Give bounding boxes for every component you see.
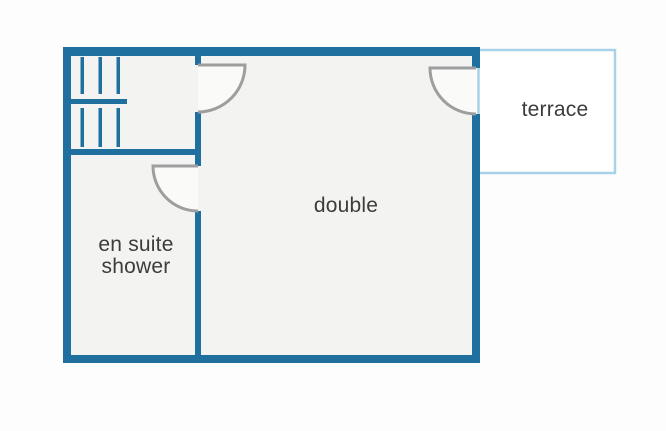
stair-tread (81, 108, 85, 147)
room-label-double: double (314, 195, 378, 217)
stair-tread (99, 108, 103, 147)
stair-tread (117, 57, 121, 94)
wall-mid-vertical-c (195, 211, 201, 355)
wall-right-upper (472, 47, 480, 68)
room-label-terrace: terrace (522, 99, 589, 121)
room-label-en-suite-shower: en suite shower (98, 234, 173, 278)
floor-fill (67, 51, 476, 359)
wall-mid-vertical-b (195, 112, 201, 166)
stair-landing-line (71, 99, 127, 104)
wall-stairs-ensuite-divider (71, 149, 195, 155)
wall-bottom (63, 355, 480, 363)
stair-tread (99, 57, 103, 94)
floor-plan: double en suite shower terrace (0, 0, 666, 431)
wall-right-lower (472, 114, 480, 363)
stair-tread (117, 108, 121, 147)
stair-tread (81, 57, 85, 94)
wall-left (63, 47, 71, 363)
wall-top (63, 47, 480, 56)
